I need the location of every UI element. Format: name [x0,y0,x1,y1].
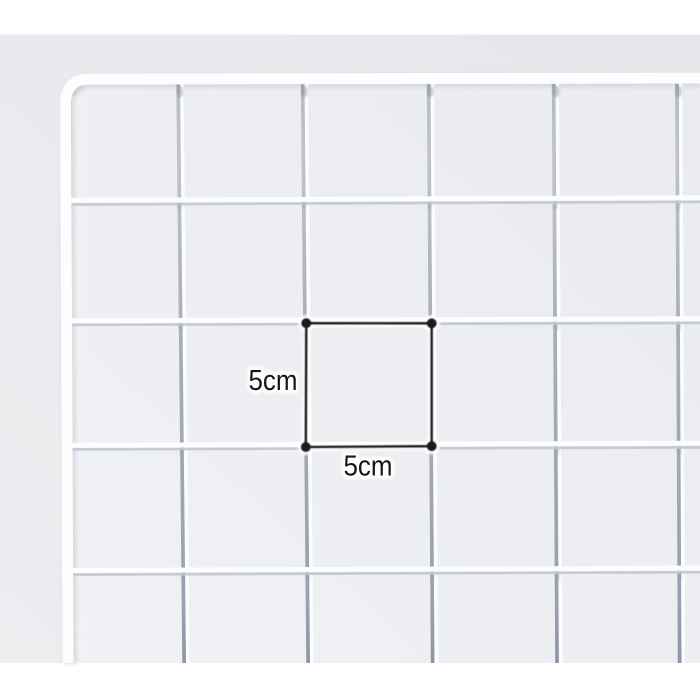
svg-text:5cm: 5cm [344,451,393,483]
svg-text:5cm: 5cm [249,365,298,397]
